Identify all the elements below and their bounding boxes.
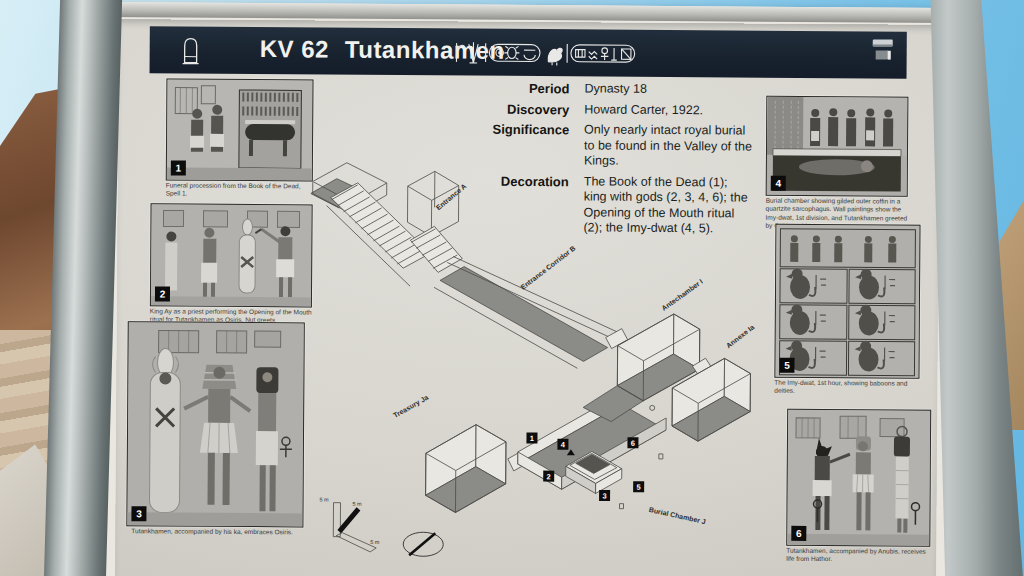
fact-value-period: Dynasty 18 bbox=[584, 81, 754, 98]
photo-5-caption: The Imy-dwat, 1st hour, showing baboons … bbox=[774, 379, 917, 397]
door-symbol bbox=[650, 405, 655, 410]
label-corridor-b: Entrance Corridor B bbox=[519, 244, 576, 290]
svg-text:2: 2 bbox=[547, 472, 551, 481]
photo-number-badge: 1 bbox=[171, 161, 186, 176]
fact-label-discovery: Discovery bbox=[451, 101, 569, 117]
label-treasury: Treasury Ja bbox=[392, 394, 430, 420]
photo-6-caption: Tutankhamen, accompanied by Anubis, rece… bbox=[786, 547, 928, 565]
fact-label-period: Period bbox=[451, 80, 569, 96]
svg-text:5 m: 5 m bbox=[320, 497, 330, 503]
staircase bbox=[326, 183, 431, 287]
photo-4-burial-chamber: 4 bbox=[766, 96, 909, 197]
svg-text:3: 3 bbox=[602, 492, 606, 501]
royal-cartouche-hieroglyphs-icon bbox=[450, 37, 640, 68]
photo-3-embrace-osiris: 3 bbox=[126, 321, 304, 527]
svg-text:6: 6 bbox=[631, 439, 635, 448]
information-sign-board: KV 62Tutankhamen bbox=[103, 2, 952, 576]
sponsor-logos bbox=[873, 39, 895, 59]
photo-1-caption: Funeral procession from the Book of the … bbox=[166, 181, 316, 199]
photo-5-art bbox=[775, 225, 919, 378]
svg-text:5 m: 5 m bbox=[370, 539, 380, 545]
north-arrow-ellipse-icon bbox=[403, 532, 443, 556]
photo-5-imy-dwat-baboons: 5 bbox=[774, 224, 920, 379]
photo-number-badge: 6 bbox=[791, 526, 806, 541]
isometric-scale-bars-icon: 5 m 5 m 5 m bbox=[319, 497, 380, 552]
label-burial-chamber: Burial Chamber J bbox=[648, 506, 706, 525]
photo-3-caption: Tutankhamen, accompanied by his ka, embr… bbox=[131, 527, 309, 537]
svg-text:5 m: 5 m bbox=[352, 501, 362, 507]
photo-number-badge: 5 bbox=[779, 358, 794, 373]
label-annexe: Annexe Ia bbox=[725, 323, 756, 349]
label-entrance-a: Entrance A bbox=[435, 182, 468, 211]
photo-number-badge: 4 bbox=[771, 176, 786, 191]
photo-number-badge: 3 bbox=[131, 506, 146, 521]
fact-value-discovery: Howard Carter, 1922. bbox=[584, 102, 754, 119]
tomb-isometric-diagram: 1 2 3 4 5 6 Entrance A Entrance Corridor… bbox=[308, 157, 771, 560]
stela-outline-icon bbox=[182, 36, 200, 66]
photo-number-badge: 2 bbox=[155, 286, 170, 301]
svg-text:5: 5 bbox=[637, 483, 641, 492]
photo-6-anubis-hathor: 6 bbox=[786, 409, 931, 547]
treasury-room bbox=[425, 424, 528, 513]
photo-2-opening-of-mouth: 2 bbox=[150, 203, 313, 307]
photo-1-funeral-procession: 1 bbox=[166, 78, 314, 181]
photo-2-art bbox=[151, 204, 312, 306]
label-antechamber: Antechamber I bbox=[660, 278, 704, 312]
photo-1-art bbox=[167, 79, 313, 180]
photo-of-tomb-sign: KV 62Tutankhamen bbox=[0, 0, 1024, 576]
door-symbol bbox=[619, 504, 623, 509]
tomb-number: KV 62 bbox=[260, 35, 329, 62]
logo-bottom bbox=[876, 50, 891, 59]
sign-header-bar: KV 62Tutankhamen bbox=[150, 26, 907, 78]
photo-6-art bbox=[787, 410, 930, 546]
svg-text:1: 1 bbox=[530, 434, 534, 443]
logo-top bbox=[873, 39, 893, 46]
door-symbol bbox=[659, 454, 663, 459]
entrance-corridor bbox=[433, 256, 628, 368]
photo-4-art bbox=[767, 97, 908, 196]
photo-3-art bbox=[127, 322, 303, 526]
